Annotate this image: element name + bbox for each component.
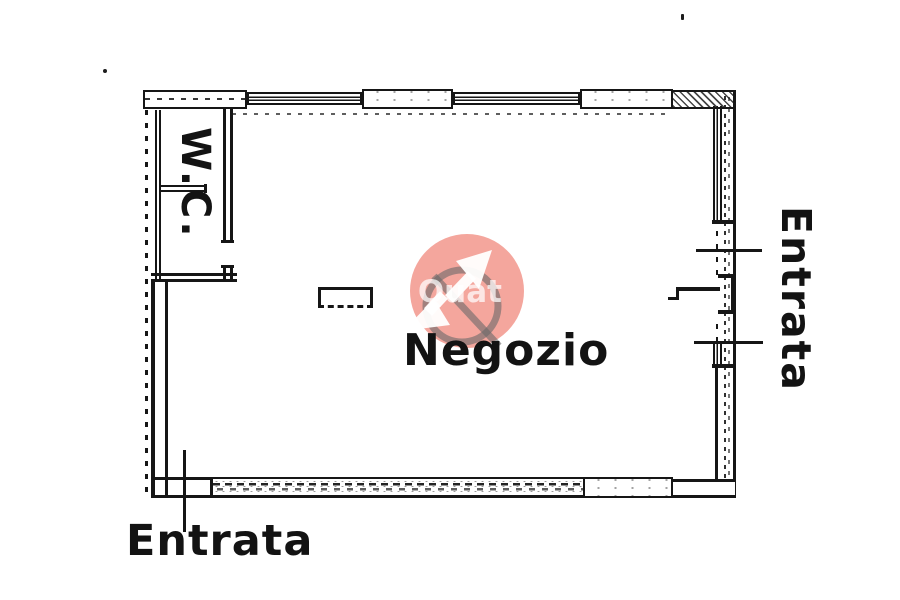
top-wall-interior-sill-line (232, 113, 672, 115)
entrance-bottom-label: Entrata (126, 516, 313, 566)
top-wall-pier-2 (580, 89, 673, 109)
watermark-text: e Quat (386, 274, 502, 310)
bottom-wall-band (213, 477, 583, 498)
wc-label: W.C. (172, 127, 218, 240)
right-door-frame (718, 274, 735, 314)
left-boundary-dashed-line (145, 110, 148, 492)
dimension-tick-upper (696, 249, 762, 252)
right-door-leaf-foot (668, 297, 677, 300)
top-wall-pier-1 (362, 89, 453, 109)
window-right-1 (713, 106, 722, 220)
wc-left-wall (155, 110, 161, 282)
counter-dashed-box (318, 287, 373, 308)
scan-speck-1 (103, 69, 107, 73)
wc-door-jamb-top (221, 240, 234, 243)
room-label: Negozio (403, 325, 609, 376)
window-right-1-cap (712, 220, 734, 224)
floor-plan: e Quat W.C. Negozio Entrata Entrata (0, 0, 900, 600)
entrance-right-label: Entrata (772, 206, 820, 392)
dimension-tick-lower (694, 341, 763, 344)
top-wall-segment-left (143, 90, 247, 109)
window-right-2 (713, 344, 722, 366)
wc-bottom-wall (151, 273, 237, 282)
window-top-1 (247, 92, 362, 105)
window-top-2 (453, 92, 580, 105)
left-wall (151, 282, 168, 498)
right-wall-inner-dash-2 (716, 316, 718, 342)
bottom-wall-pier (583, 477, 673, 498)
wc-right-wall-upper (223, 108, 233, 243)
bottom-wall-corner-segment (673, 479, 735, 498)
scan-speck-2 (681, 14, 684, 20)
right-door-leaf (676, 287, 720, 291)
